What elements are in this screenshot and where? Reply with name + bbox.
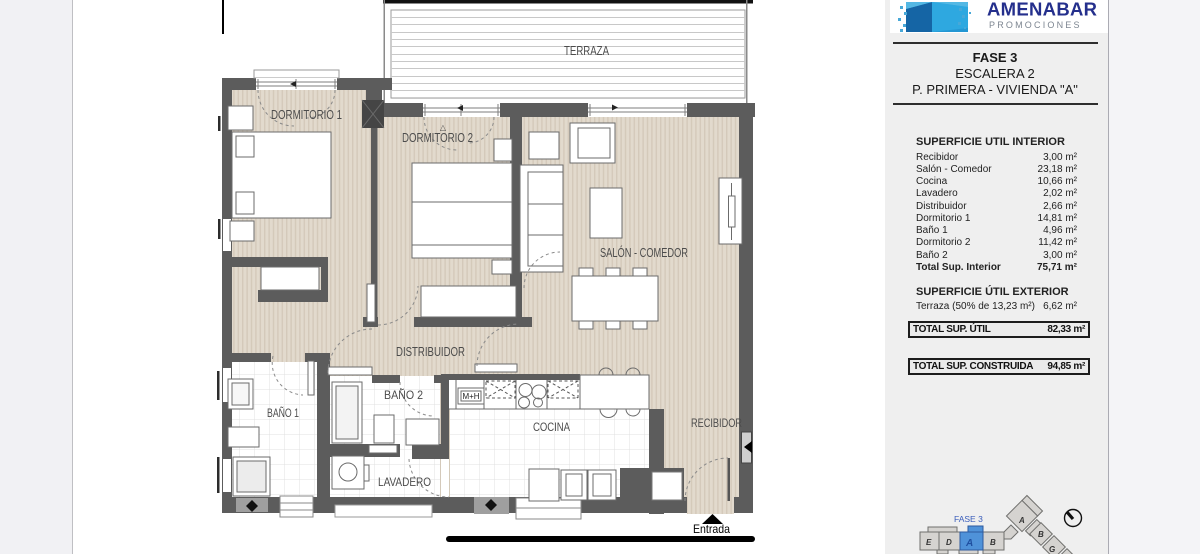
svg-text:M+H: M+H bbox=[462, 392, 479, 401]
svg-text:RECIBIDOR: RECIBIDOR bbox=[691, 418, 742, 430]
svg-text:DORMITORIO 2: DORMITORIO 2 bbox=[402, 131, 473, 145]
svg-text:B: B bbox=[1038, 530, 1044, 539]
svg-text:A: A bbox=[965, 538, 973, 549]
svg-text:PROMOCIONES: PROMOCIONES bbox=[989, 20, 1082, 30]
svg-text:AMENABAR: AMENABAR bbox=[987, 0, 1097, 20]
svg-text:△: △ bbox=[440, 123, 447, 132]
svg-text:D: D bbox=[946, 538, 952, 547]
svg-text:LAVADERO: LAVADERO bbox=[378, 477, 431, 489]
svg-text:SALÓN - COMEDOR: SALÓN - COMEDOR bbox=[600, 245, 688, 260]
svg-text:FASE 3: FASE 3 bbox=[954, 514, 983, 524]
svg-text:Entrada: Entrada bbox=[693, 522, 730, 536]
svg-text:TERRAZA: TERRAZA bbox=[564, 43, 609, 58]
svg-text:BAÑO 2: BAÑO 2 bbox=[384, 389, 423, 402]
svg-text:COCINA: COCINA bbox=[533, 422, 570, 434]
svg-text:DORMITORIO 1: DORMITORIO 1 bbox=[271, 108, 342, 122]
svg-text:G: G bbox=[1049, 545, 1055, 554]
svg-text:B: B bbox=[990, 538, 996, 547]
svg-text:A: A bbox=[1018, 516, 1025, 525]
svg-text:E: E bbox=[926, 538, 932, 547]
svg-text:DISTRIBUIDOR: DISTRIBUIDOR bbox=[396, 345, 465, 359]
svg-text:BAÑO 1: BAÑO 1 bbox=[267, 407, 299, 420]
